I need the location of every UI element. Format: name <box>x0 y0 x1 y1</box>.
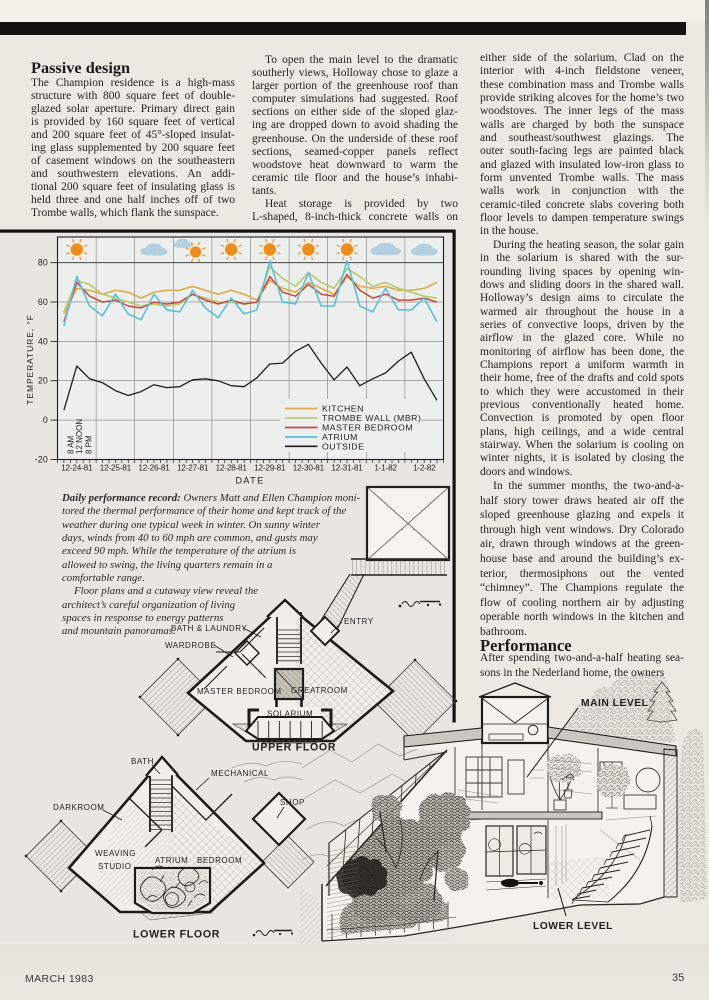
svg-text:ATRIUM: ATRIUM <box>155 856 188 865</box>
svg-text:ATRIUM: ATRIUM <box>322 432 358 442</box>
svg-text:MAIN LEVEL: MAIN LEVEL <box>581 698 648 709</box>
svg-text:12-25-81: 12-25-81 <box>100 464 132 473</box>
svg-text:UPPER FLOOR: UPPER FLOOR <box>252 742 336 754</box>
svg-text:12-30-81: 12-30-81 <box>293 464 325 473</box>
svg-text:BEDROOM: BEDROOM <box>197 856 242 865</box>
svg-text:WARDROBE: WARDROBE <box>165 641 216 650</box>
svg-text:WEAVING: WEAVING <box>95 849 136 858</box>
svg-text:SHOP: SHOP <box>280 798 305 807</box>
svg-text:60: 60 <box>38 297 48 307</box>
svg-text:LOWER LEVEL: LOWER LEVEL <box>533 921 613 932</box>
svg-text:12-28-81: 12-28-81 <box>216 464 248 473</box>
svg-text:12-27-81: 12-27-81 <box>177 464 209 473</box>
svg-text:SOLARIUM: SOLARIUM <box>267 710 313 719</box>
svg-text:LOWER FLOOR: LOWER FLOOR <box>133 929 220 941</box>
svg-text:KITCHEN: KITCHEN <box>322 404 364 414</box>
svg-text:40: 40 <box>38 336 48 346</box>
svg-text:OUTSIDE: OUTSIDE <box>322 442 364 452</box>
svg-text:TEMPERATURE, °F: TEMPERATURE, °F <box>25 314 35 404</box>
svg-text:DARKROOM: DARKROOM <box>53 803 105 812</box>
svg-text:TROMBE WALL (MBR): TROMBE WALL (MBR) <box>322 413 421 423</box>
svg-text:12-24-81: 12-24-81 <box>61 464 93 473</box>
svg-text:1-2-82: 1-2-82 <box>413 464 436 473</box>
svg-text:12-26-81: 12-26-81 <box>138 464 170 473</box>
svg-text:20: 20 <box>38 376 48 386</box>
svg-text:DATE: DATE <box>236 476 265 486</box>
svg-text:12-31-81: 12-31-81 <box>331 464 363 473</box>
svg-text:1-1-82: 1-1-82 <box>374 464 397 473</box>
svg-text:8 AM: 8 AM <box>66 435 75 454</box>
svg-text:80: 80 <box>38 258 48 268</box>
svg-text:GREATROOM: GREATROOM <box>291 686 348 695</box>
svg-text:12 NOON: 12 NOON <box>75 419 84 454</box>
svg-text:0: 0 <box>43 415 48 425</box>
svg-text:8 PM: 8 PM <box>84 435 93 454</box>
svg-text:MECHANICAL: MECHANICAL <box>211 769 269 778</box>
svg-text:MASTER BEDROOM: MASTER BEDROOM <box>322 423 413 433</box>
svg-text:12-29-81: 12-29-81 <box>254 464 286 473</box>
svg-text:-20: -20 <box>35 455 48 465</box>
svg-text:BATH: BATH <box>131 757 154 766</box>
svg-text:STUDIO: STUDIO <box>98 862 132 871</box>
svg-text:MASTER BEDROOM: MASTER BEDROOM <box>197 687 282 696</box>
